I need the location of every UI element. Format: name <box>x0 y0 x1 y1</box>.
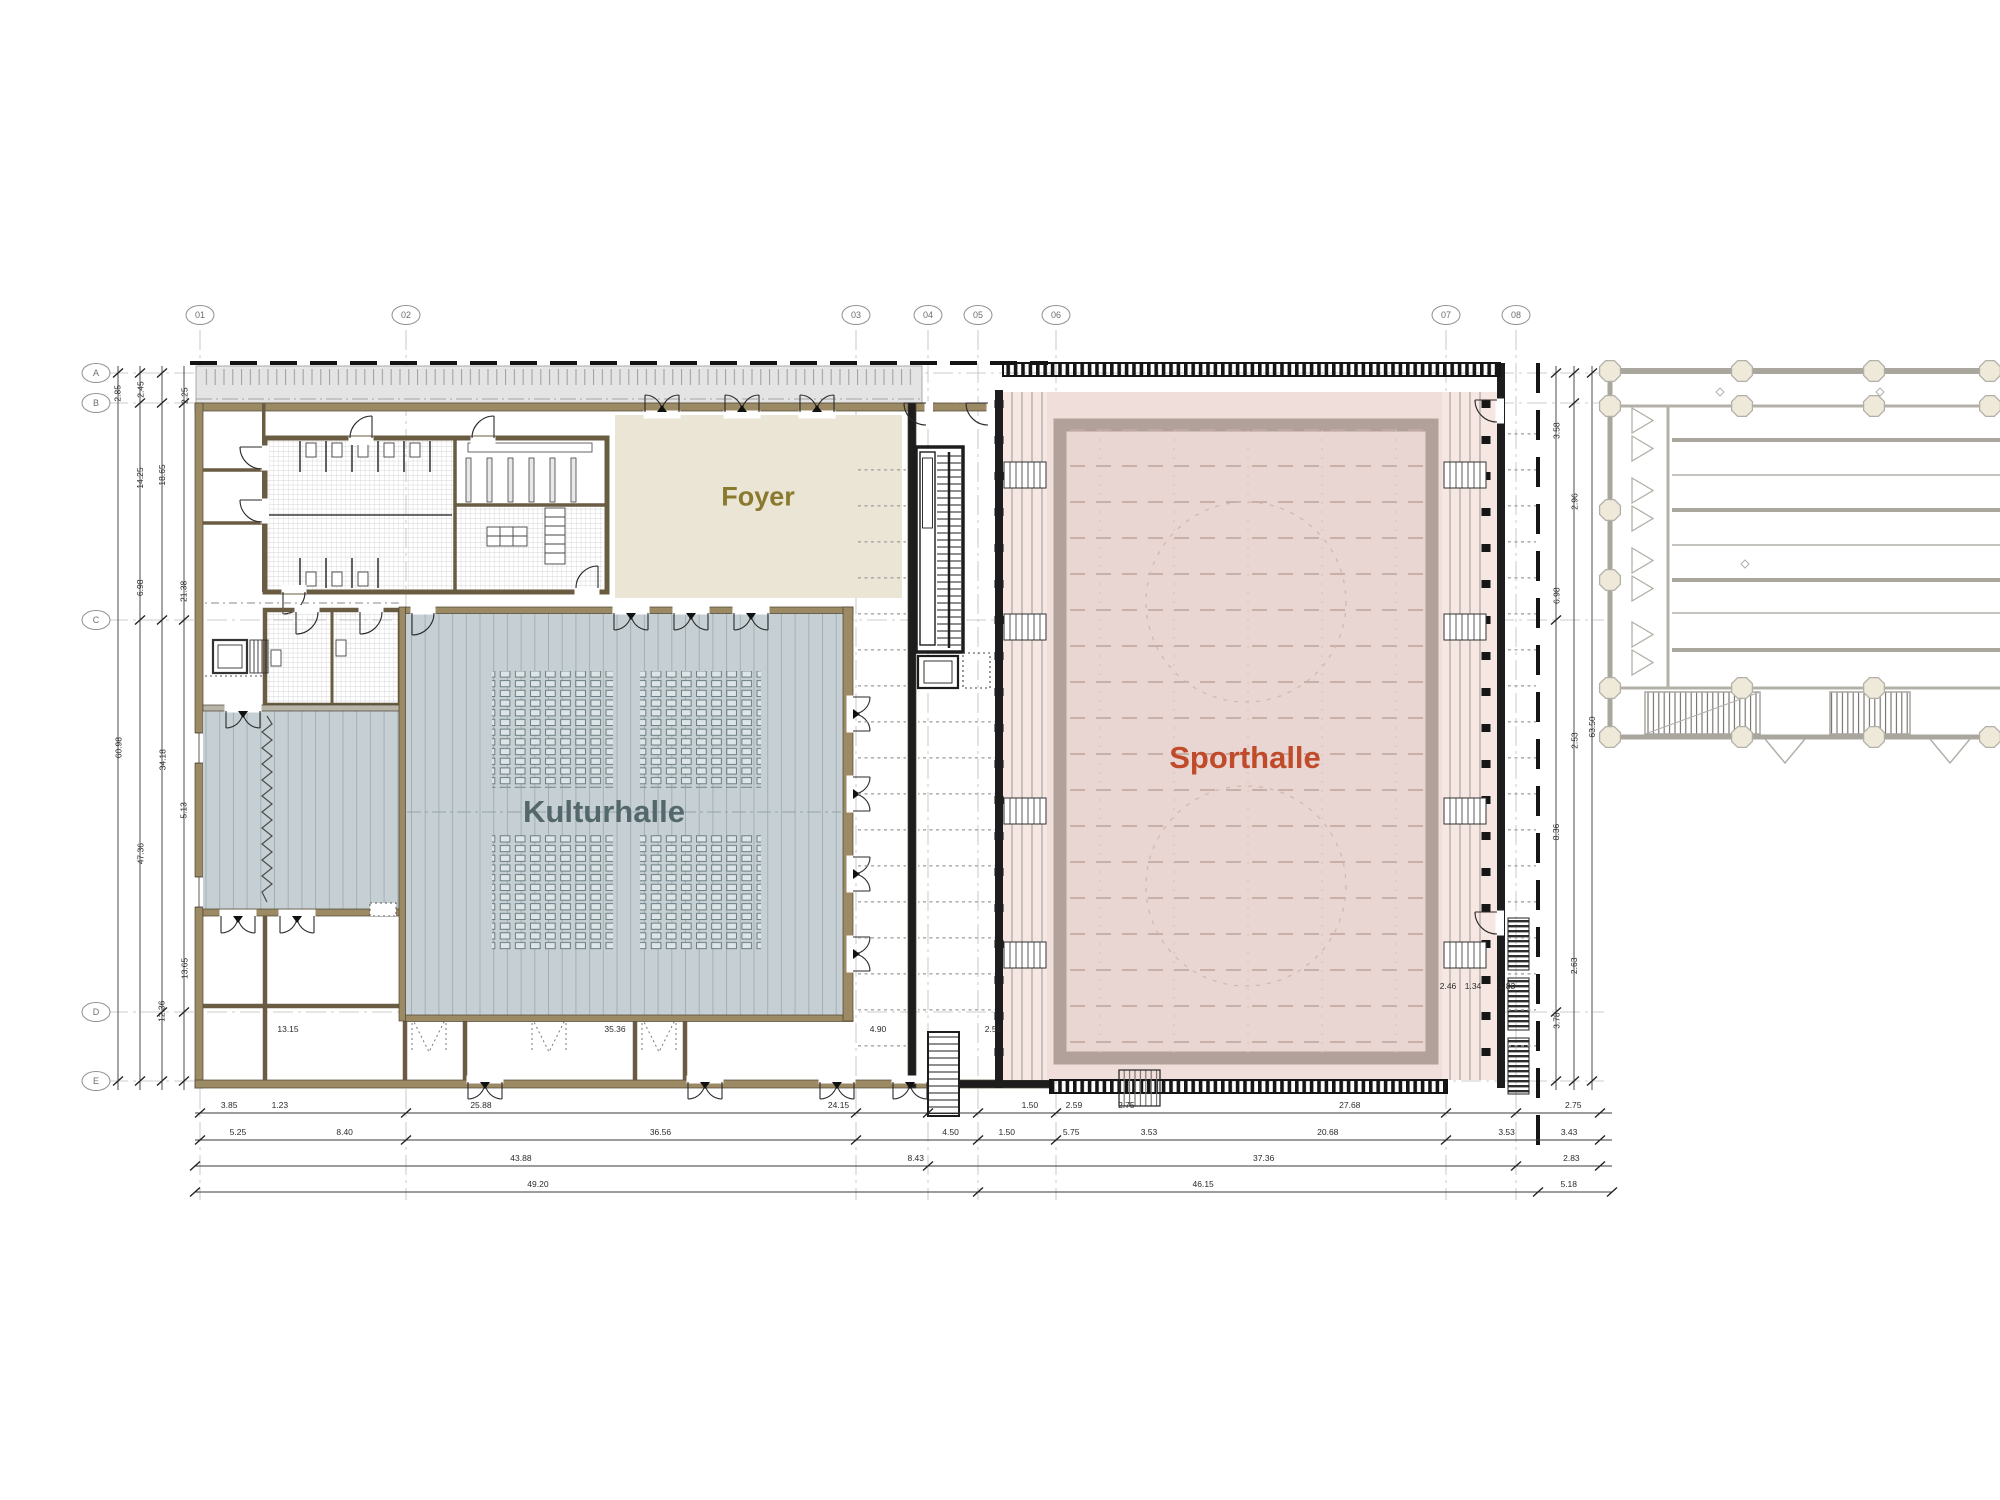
dimension-chain-bottom-4: 49.2046.155.18 <box>195 1177 1612 1189</box>
dimension-value: 5.25 <box>195 1127 281 1137</box>
dimension-value: 2.96 <box>1445 495 1702 509</box>
dimension-value: 37.36 <box>985 1153 1543 1163</box>
interior-dimension: 2.46 <box>1440 981 1457 991</box>
dimension-value: 2.83 <box>1543 1153 1600 1163</box>
dimension-value: 3.53 <box>1117 1127 1180 1137</box>
dimension-value: 34.18 <box>0 753 345 767</box>
grid-bubble-column-08: 08 <box>1502 305 1531 325</box>
interior-dimension: 35.36 <box>604 1024 625 1034</box>
dimension-value: 36.56 <box>408 1127 912 1137</box>
dimension-value: 13.65 <box>72 961 297 975</box>
grid-bubble-column-06: 06 <box>1042 305 1071 325</box>
dimension-value: 12.36 <box>93 1005 232 1019</box>
dimension-value: 18.65 <box>60 468 264 482</box>
grid-bubble-column-03: 03 <box>842 305 871 325</box>
grid-bubble-column-07: 07 <box>1432 305 1461 325</box>
grid-bubble-row-a: A <box>82 363 111 383</box>
room-label-kulturhalle: Kulturhalle <box>523 794 685 830</box>
dimension-value: 20.68 <box>1181 1127 1475 1137</box>
dimension-chain-bottom-2: 5.258.4036.564.501.505.753.5320.683.533.… <box>195 1125 1600 1137</box>
grid-bubble-column-04: 04 <box>914 305 943 325</box>
room-label-sporthalle: Sporthalle <box>1169 740 1321 776</box>
interior-dimension: 2.52 <box>985 1024 1002 1034</box>
dimension-value: 43.88 <box>195 1153 847 1163</box>
dimension-value: 5.75 <box>1025 1127 1118 1137</box>
dimension-value: 5.18 <box>1525 1179 1612 1189</box>
dimension-value: 1.50 <box>1012 1100 1049 1110</box>
grid-bubble-row-c: C <box>82 610 111 630</box>
dimension-value: 63.50 <box>1238 720 1946 734</box>
dimension-value: 2.59 <box>1048 1100 1099 1110</box>
adjacent-building <box>1600 361 2000 763</box>
interior-dimension: 1.34 <box>1465 981 1482 991</box>
dimension-value: 27.68 <box>1153 1100 1546 1110</box>
floor-plan: 01 02 03 04 05 06 07 08 A B C D E Foyer … <box>0 0 2000 1500</box>
interior-dimension: 4.90 <box>870 1024 887 1034</box>
dimension-value: 8.36 <box>1428 825 1684 839</box>
dimension-value: 8.40 <box>281 1127 409 1137</box>
grid-bubble-column-05: 05 <box>964 305 993 325</box>
dimension-chain-right-3: 63.50 <box>1585 373 1599 1081</box>
dimension-chain-bottom-1: 3.851.2325.8824.151.502.592.7527.682.75 <box>195 1098 1600 1110</box>
grid-bubble-column-02: 02 <box>392 305 421 325</box>
dimension-value: 5.13 <box>139 804 230 818</box>
grid-bubble-row-d: D <box>82 1002 111 1022</box>
ancillary-rooms-block <box>265 605 400 705</box>
dimension-value: 3.43 <box>1538 1127 1600 1137</box>
grid-bubble-column-01: 01 <box>186 305 215 325</box>
dimension-value: 2.75 <box>1546 1100 1600 1110</box>
dimension-value: 2.63 <box>1459 959 1689 973</box>
dimension-value: 2.25 <box>161 389 206 403</box>
elevator <box>205 640 270 676</box>
dimension-value: 4.50 <box>913 1127 989 1137</box>
dimension-value: 3.53 <box>1475 1127 1538 1137</box>
dimension-value: 8.43 <box>847 1153 985 1163</box>
dimension-chain-bottom-3: 43.888.4337.362.83 <box>195 1151 1600 1163</box>
dimension-value: 24.15 <box>666 1100 1012 1110</box>
dimension-value: 21.38 <box>11 585 358 599</box>
dimension-value: 25.88 <box>296 1100 665 1110</box>
dimension-value: 6.98 <box>1448 589 1663 603</box>
dimension-value: 1.23 <box>263 1100 296 1110</box>
stair-core <box>856 402 996 1117</box>
grid-bubble-row-b: B <box>82 393 111 413</box>
interior-dimension: 13.15 <box>277 1024 298 1034</box>
dimension-value: 1.50 <box>989 1127 1025 1137</box>
dimension-value: 46.15 <box>881 1179 1526 1189</box>
dimension-chain-left-4: 2.2521.385.1313.65 <box>177 373 191 1081</box>
dimension-value: 2.75 <box>1100 1100 1154 1110</box>
dimension-value: 49.20 <box>195 1179 881 1189</box>
interior-dimension: 1.83 <box>1499 981 1516 991</box>
dimension-value: 3.85 <box>195 1100 263 1110</box>
room-label-foyer: Foyer <box>721 482 795 513</box>
stage <box>203 705 405 917</box>
grid-bubble-row-e: E <box>82 1071 111 1091</box>
canopy <box>190 363 1048 403</box>
dimension-value: 2.53 <box>1463 734 1684 748</box>
dimension-value: 2.45 <box>123 383 156 397</box>
wardrobe-racks <box>466 458 576 502</box>
